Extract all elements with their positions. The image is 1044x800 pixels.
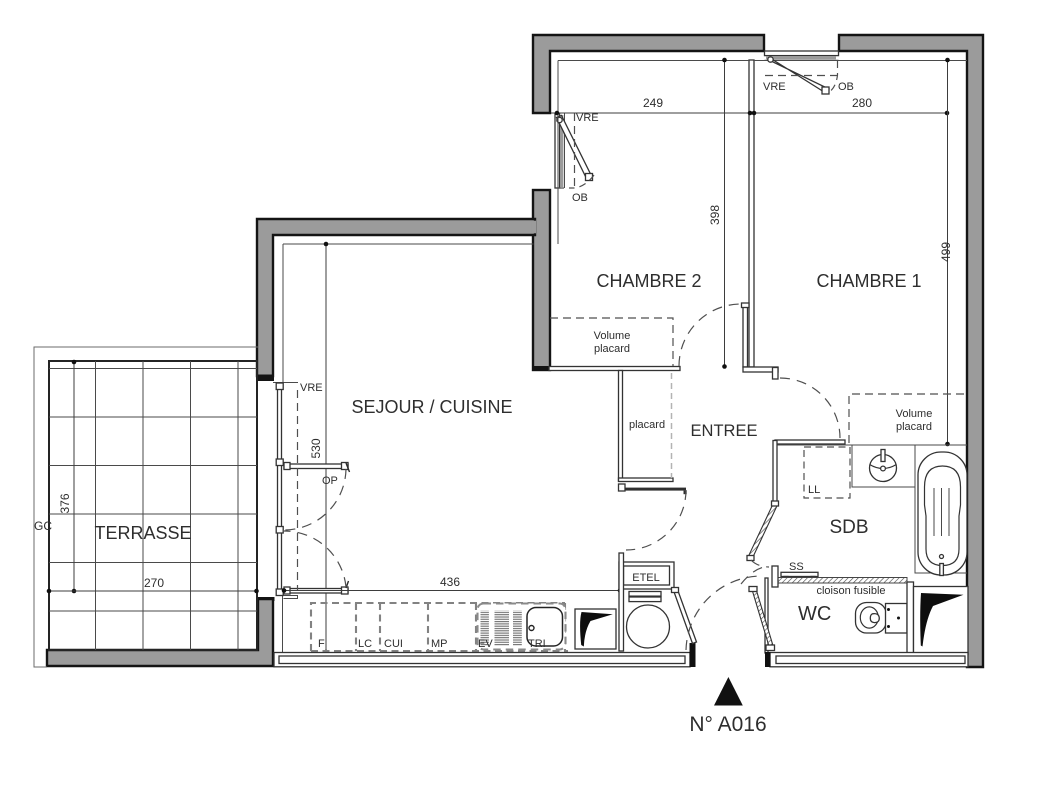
svg-text:Volume: Volume xyxy=(594,330,631,342)
svg-text:OB: OB xyxy=(838,81,854,93)
svg-text:placard: placard xyxy=(629,419,665,431)
svg-text:N° A016: N° A016 xyxy=(689,713,766,736)
svg-text:LC: LC xyxy=(358,638,372,650)
svg-text:499: 499 xyxy=(939,242,953,262)
svg-text:280: 280 xyxy=(852,96,872,110)
svg-text:530: 530 xyxy=(309,438,323,458)
svg-text:LL: LL xyxy=(808,484,820,496)
svg-text:436: 436 xyxy=(440,575,460,589)
svg-text:OP: OP xyxy=(322,475,338,487)
svg-text:CHAMBRE 2: CHAMBRE 2 xyxy=(596,271,701,291)
svg-text:MP: MP xyxy=(431,638,448,650)
svg-text:249: 249 xyxy=(643,96,663,110)
svg-text:GC: GC xyxy=(34,519,52,533)
svg-text:EV: EV xyxy=(478,638,493,650)
svg-text:270: 270 xyxy=(144,576,164,590)
svg-text:placard: placard xyxy=(896,421,932,433)
svg-text:ENTREE: ENTREE xyxy=(691,422,758,440)
svg-text:SEJOUR / CUISINE: SEJOUR / CUISINE xyxy=(351,397,512,417)
svg-text:TERRASSE: TERRASSE xyxy=(94,523,191,543)
svg-text:376: 376 xyxy=(58,493,72,513)
svg-text:WC: WC xyxy=(798,603,831,625)
svg-text:cloison fusible: cloison fusible xyxy=(816,585,885,597)
svg-text:Volume: Volume xyxy=(896,408,933,420)
svg-text:VRE: VRE xyxy=(576,112,599,124)
svg-text:SDB: SDB xyxy=(829,517,868,538)
svg-text:CHAMBRE 1: CHAMBRE 1 xyxy=(816,271,921,291)
svg-text:VRE: VRE xyxy=(300,382,323,394)
svg-text:F: F xyxy=(318,638,325,650)
svg-text:ETEL: ETEL xyxy=(632,572,660,584)
svg-text:placard: placard xyxy=(594,343,630,355)
svg-text:SS: SS xyxy=(789,561,804,573)
svg-text:TRI: TRI xyxy=(528,638,546,650)
svg-text:VRE: VRE xyxy=(763,81,786,93)
svg-text:398: 398 xyxy=(708,205,722,225)
svg-text:CUI: CUI xyxy=(384,638,403,650)
svg-text:OB: OB xyxy=(572,192,588,204)
